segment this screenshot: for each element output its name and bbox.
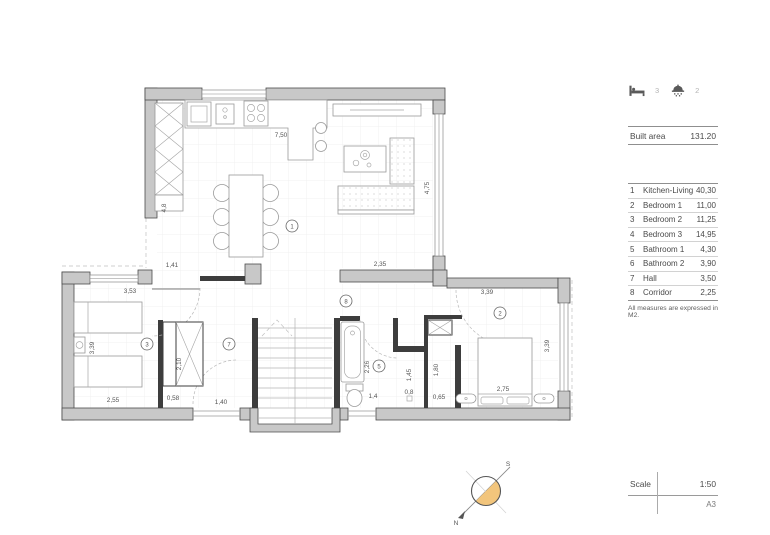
dim-label: 3,39 <box>544 339 551 352</box>
chair <box>262 185 279 202</box>
dim-label: 1,40 <box>215 399 228 406</box>
stool <box>316 141 327 152</box>
bed <box>74 356 142 387</box>
fridge <box>187 102 211 126</box>
dining-table <box>229 175 263 257</box>
table-row: 7Hall3,50 <box>628 272 718 287</box>
room-marker: 5 <box>373 360 385 372</box>
sofa-back <box>338 210 414 214</box>
compass: S N <box>454 461 511 527</box>
compass-south-label: S <box>506 461 511 468</box>
bed <box>74 302 142 333</box>
compass-north-arrow <box>458 511 465 519</box>
compass-north-label: N <box>454 520 459 527</box>
dim-label: 4,75 <box>424 181 431 194</box>
dim-label: 1,4 <box>369 393 378 400</box>
nightstand <box>534 394 554 403</box>
table-row: 3Bedroom 211,25 <box>628 213 718 228</box>
table-row: 2Bedroom 111,00 <box>628 199 718 214</box>
hall-wardrobe <box>163 322 203 386</box>
dim-label: 7,50 <box>275 132 288 139</box>
dim-label: 1,45 <box>406 368 413 381</box>
dim-label: 3,39 <box>89 341 96 354</box>
dim-label: 3,39 <box>481 289 494 296</box>
table-row: 4Bedroom 314,95 <box>628 228 718 243</box>
dim-label: 0,65 <box>433 394 446 401</box>
dim-label: 2,26 <box>364 360 371 373</box>
dim-label: 2,10 <box>176 357 183 370</box>
room-marker: 8 <box>340 295 352 307</box>
info-panel: 3 2 Built area 131.20 1Kitchen-Living40,… <box>628 0 718 535</box>
floor-plan: 7,50 4,8 4,75 1,41 2,35 3,53 3,39 2,55 2… <box>0 0 620 535</box>
stool <box>316 123 327 134</box>
chair <box>262 233 279 250</box>
toilet <box>347 390 362 407</box>
dim-label: 2,35 <box>374 261 387 268</box>
dim-label: 0,8 <box>405 389 414 396</box>
closet <box>163 322 176 386</box>
dim-label: 0,58 <box>167 395 180 402</box>
scale-value: 1:50 <box>700 479 716 489</box>
shower-icon <box>671 84 685 97</box>
kitchen-unit <box>155 195 183 211</box>
nightstand <box>74 337 85 353</box>
sofa-section <box>390 138 414 184</box>
bathroom-count: 2 <box>695 86 699 95</box>
chair <box>214 233 231 250</box>
stove <box>244 101 268 126</box>
table-row: 8Corridor2,25 <box>628 286 718 301</box>
dim-label: 2,75 <box>497 386 510 393</box>
thresholds <box>193 411 376 416</box>
coffee-table <box>344 146 386 172</box>
dim-label: 1,41 <box>166 262 179 269</box>
dining-area <box>214 175 279 257</box>
scale-label: Scale <box>630 479 651 489</box>
built-area-label: Built area <box>630 131 665 141</box>
built-area-row: Built area 131.20 <box>628 126 718 145</box>
scale-block: Scale 1:50 A3 <box>628 472 718 514</box>
bed <box>478 338 532 406</box>
summary-icons: 3 2 <box>629 84 699 97</box>
bedroom-count: 3 <box>655 86 659 95</box>
dim-label: 1,80 <box>433 363 440 376</box>
room-marker: 7 <box>223 338 235 350</box>
compass-fill <box>476 481 501 506</box>
dim-label: 4,8 <box>161 203 168 212</box>
table-row: 6Bathroom 23,90 <box>628 257 718 272</box>
nightstand <box>456 394 476 403</box>
divider <box>657 472 658 514</box>
dim-label: 2,55 <box>107 397 120 404</box>
bed-icon <box>629 85 645 97</box>
sofa-section <box>338 186 414 210</box>
dim-label: 3,53 <box>124 288 137 295</box>
room-marker: 3 <box>141 338 153 350</box>
room-marker: 1 <box>286 220 298 232</box>
chair <box>214 209 231 226</box>
rooms-table: 1Kitchen-Living40,30 2Bedroom 111,00 3Be… <box>628 183 718 301</box>
table-row: 1Kitchen-Living40,30 <box>628 184 718 199</box>
chair <box>262 209 279 226</box>
room-marker: 2 <box>494 307 506 319</box>
built-area-value: 131.20 <box>690 131 716 141</box>
wardrobe-column <box>155 103 183 195</box>
page: 7,50 4,8 4,75 1,41 2,35 3,53 3,39 2,55 2… <box>0 0 770 535</box>
measures-note: All measures are expressed in M2. <box>628 305 718 319</box>
sheet-size: A3 <box>628 496 718 509</box>
table-row: 5Bathroom 14,30 <box>628 242 718 257</box>
kitchen-sink <box>216 104 234 124</box>
chair <box>214 185 231 202</box>
